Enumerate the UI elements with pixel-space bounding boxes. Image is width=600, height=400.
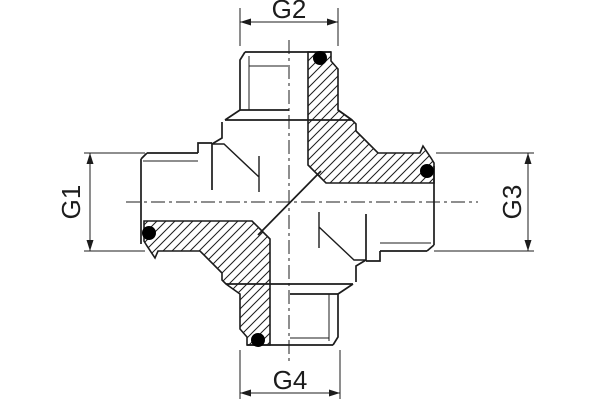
dimension-label-g4: G4 bbox=[273, 365, 308, 395]
seal-ring-right bbox=[420, 164, 434, 178]
dimension-label-g1: G1 bbox=[56, 185, 86, 220]
seal-ring-top bbox=[313, 51, 327, 65]
dimension-label-g3: G3 bbox=[497, 185, 527, 220]
seal-ring-bottom bbox=[251, 333, 265, 347]
technical-drawing-canvas: G2 G4 G1 G3 bbox=[0, 0, 600, 400]
dimension-label-g2: G2 bbox=[272, 0, 307, 24]
cross-fitting-drawing: G2 G4 G1 G3 bbox=[0, 0, 600, 400]
seal-ring-left bbox=[142, 226, 156, 240]
